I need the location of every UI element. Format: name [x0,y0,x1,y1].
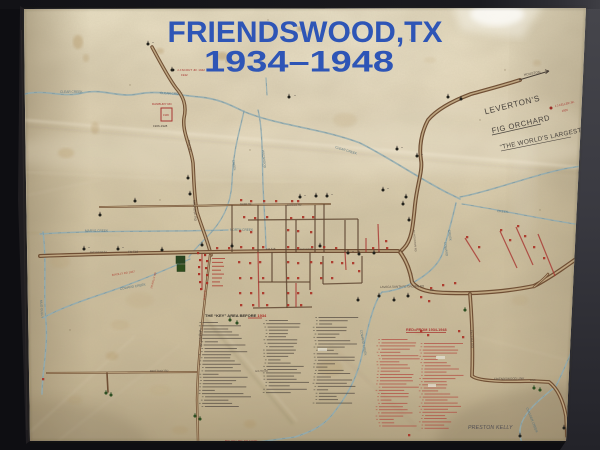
svg-text:LAVACA SANTA FE GROWN RD: LAVACA SANTA FE GROWN RD [380,284,425,289]
svg-text:ROSE RD: ROSE RD [240,203,252,206]
svg-text:FRIENDSWOOD LINK: FRIENDSWOOD LINK [494,376,524,381]
svg-text:PRESTON KELLY: PRESTON KELLY [468,425,513,431]
svg-text:RD: RD [430,288,434,292]
svg-text:1934–1948: 1934–1948 [204,46,394,79]
svg-text:BRITTANY RD: BRITTANY RD [150,369,168,373]
svg-text:CLEAR CREEK: CLEAR CREEK [60,90,83,94]
svg-text:THE “KEY” AREA BEFORE 1934: THE “KEY” AREA BEFORE 1934 [205,313,267,318]
svg-text:1906-1928: 1906-1928 [153,124,168,128]
svg-text:FM 518 RD: FM 518 RD [300,247,313,251]
svg-text:FM 518: FM 518 [266,247,276,251]
svg-text:J.J.SCOUT JR. 1942: J.J.SCOUT JR. 1942 [177,68,205,72]
svg-text:FM 518: FM 518 [128,250,139,254]
svg-text:MARYS CREEK: MARYS CREEK [85,229,109,233]
svg-text:RED=FROM 1934-1948: RED=FROM 1934-1948 [406,328,447,332]
svg-text:FRIENDSWOOD,TX: FRIENDSWOOD,TX [168,16,443,49]
svg-text:DANBURY RD: DANBURY RD [152,102,173,106]
svg-text:FM 518 WEST: FM 518 WEST [90,250,107,254]
svg-text:LINK: LINK [530,379,536,382]
svg-text:SOUTH RD: SOUTH RD [255,370,268,373]
svg-text:BRIGGS RD: BRIGGS RD [287,203,302,207]
svg-text:1942: 1942 [181,73,188,77]
svg-text:1906: 1906 [163,113,169,117]
